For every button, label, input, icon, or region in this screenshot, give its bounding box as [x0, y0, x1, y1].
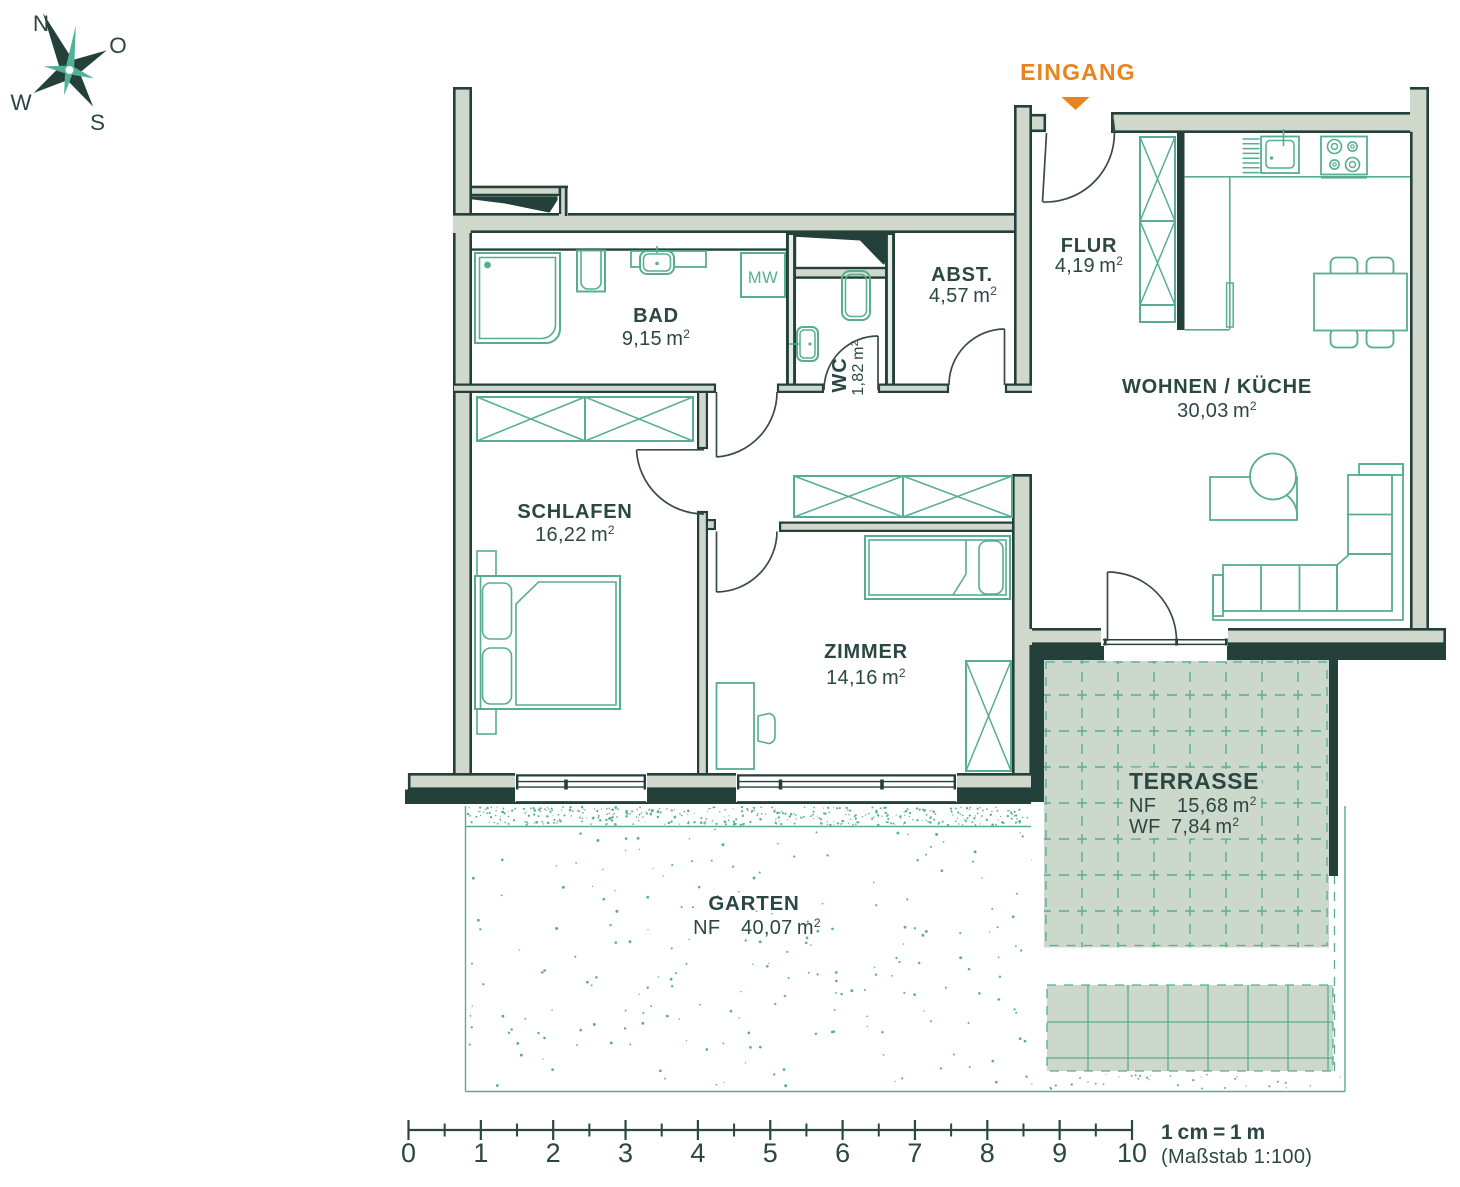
svg-text:MW: MW: [748, 269, 778, 287]
svg-text:WC: WC: [829, 358, 851, 393]
svg-text:(Maßstab 1:100): (Maßstab 1:100): [1161, 1146, 1312, 1168]
svg-text:4,19 m2: 4,19 m2: [1055, 254, 1123, 277]
svg-text:4,57 m2: 4,57 m2: [929, 284, 997, 307]
svg-text:1 cm = 1 m: 1 cm = 1 m: [1161, 1121, 1265, 1144]
svg-text:9,15 m2: 9,15 m2: [622, 327, 690, 350]
svg-text:7: 7: [907, 1138, 922, 1168]
svg-text:30,03 m2: 30,03 m2: [1177, 399, 1257, 422]
svg-text:S: S: [90, 110, 105, 135]
svg-text:3: 3: [618, 1138, 633, 1168]
svg-text:16,22 m2: 16,22 m2: [535, 523, 615, 546]
svg-text:4: 4: [690, 1138, 705, 1168]
svg-text:O: O: [109, 33, 127, 58]
svg-text:0: 0: [401, 1138, 416, 1168]
svg-text:2: 2: [546, 1138, 561, 1168]
svg-text:ZIMMER: ZIMMER: [824, 641, 908, 663]
svg-text:N: N: [33, 11, 49, 36]
svg-text:6: 6: [835, 1138, 850, 1168]
svg-text:GARTEN: GARTEN: [708, 892, 799, 915]
svg-text:8: 8: [980, 1138, 995, 1168]
svg-text:WOHNEN / KÜCHE: WOHNEN / KÜCHE: [1122, 375, 1312, 398]
svg-text:NF 40,07 m2: NF 40,07 m2: [693, 916, 821, 939]
svg-text:10: 10: [1117, 1138, 1147, 1168]
svg-text:EINGANG: EINGANG: [1020, 59, 1136, 85]
svg-text:WF 7,84 m2: WF 7,84 m2: [1129, 815, 1239, 838]
svg-text:1: 1: [473, 1138, 488, 1168]
svg-text:TERRASSE: TERRASSE: [1129, 768, 1259, 794]
svg-text:ABST.: ABST.: [931, 264, 993, 286]
svg-text:14,16 m2: 14,16 m2: [826, 666, 906, 689]
svg-text:1,82 m2: 1,82 m2: [850, 340, 867, 395]
svg-text:FLUR: FLUR: [1061, 235, 1118, 257]
svg-text:BAD: BAD: [633, 305, 679, 327]
svg-text:W: W: [10, 90, 32, 115]
svg-text:NF 15,68 m2: NF 15,68 m2: [1129, 794, 1257, 817]
svg-text:9: 9: [1052, 1138, 1067, 1168]
svg-text:5: 5: [763, 1138, 778, 1168]
svg-text:SCHLAFEN: SCHLAFEN: [517, 501, 632, 523]
